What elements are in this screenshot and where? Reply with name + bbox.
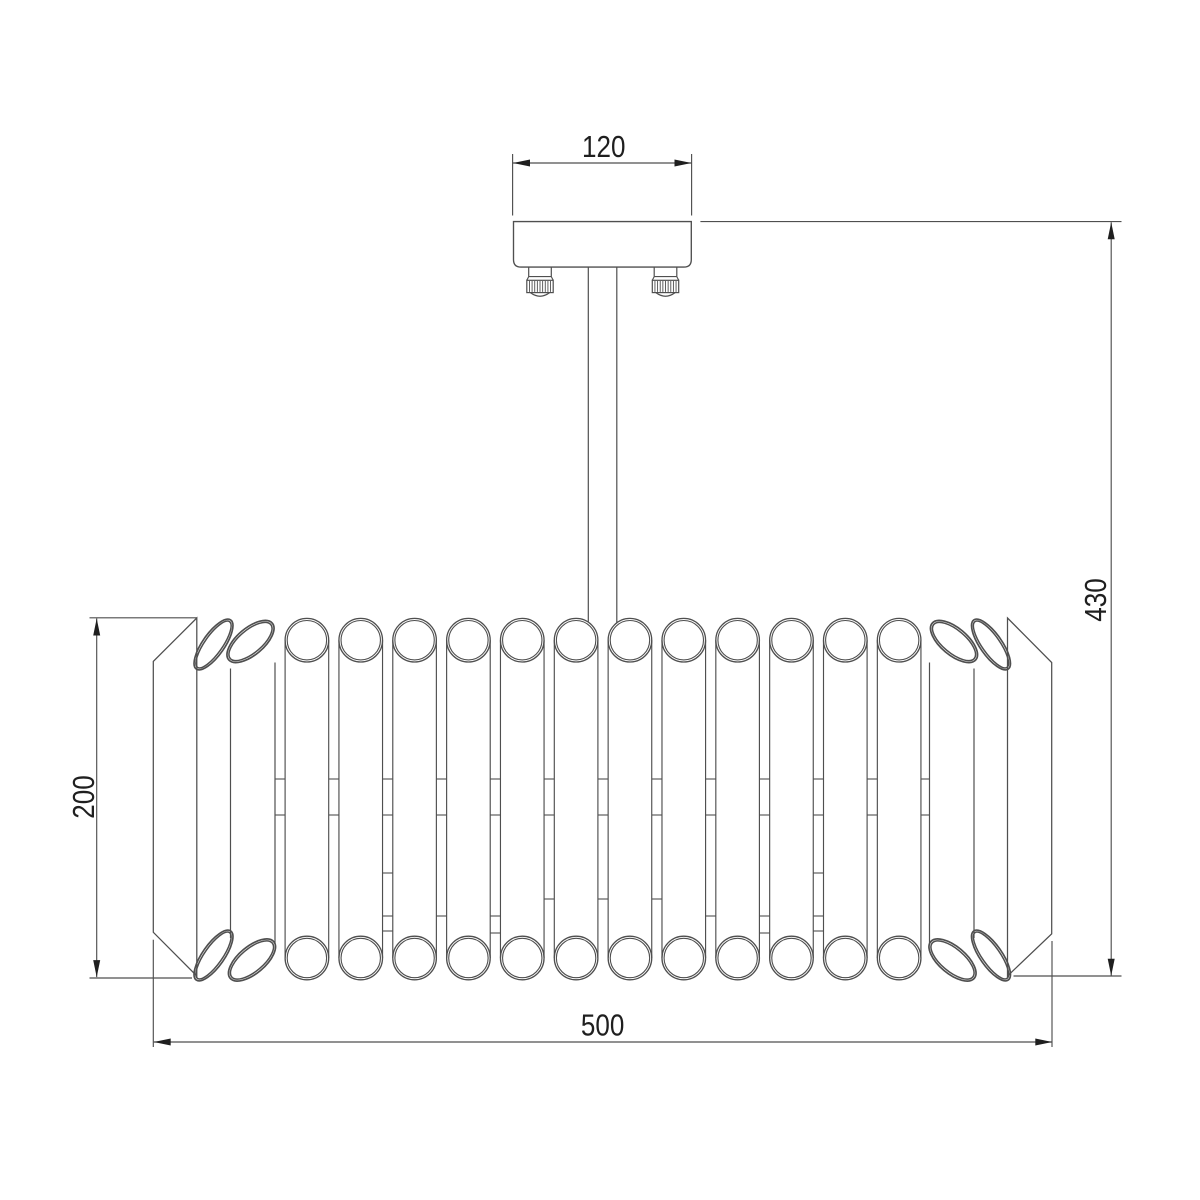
svg-text:430: 430 xyxy=(1079,578,1114,621)
svg-text:120: 120 xyxy=(582,130,625,165)
svg-text:200: 200 xyxy=(67,775,102,818)
svg-text:500: 500 xyxy=(581,1008,624,1043)
